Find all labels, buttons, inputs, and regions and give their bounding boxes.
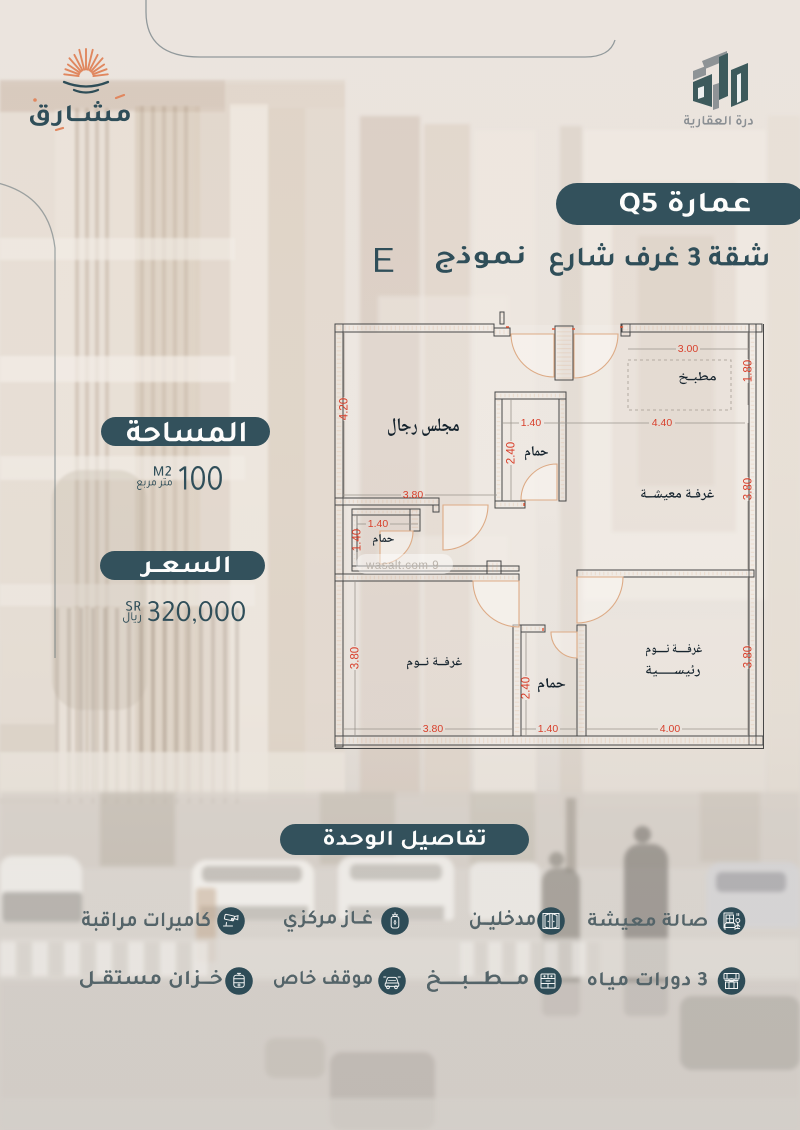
svg-text:1.80: 1.80 [743,360,755,382]
svg-text:2.40: 2.40 [521,677,533,699]
svg-text:3.00: 3.00 [678,343,699,355]
svg-text:1.40: 1.40 [521,417,542,429]
svg-text:3.80: 3.80 [423,723,444,735]
svg-text:3.80: 3.80 [743,646,755,668]
svg-text:4.20: 4.20 [339,398,351,420]
svg-text:wasalt.com 9: wasalt.com 9 [365,560,439,572]
svg-text:4.40: 4.40 [652,417,673,429]
svg-text:4.00: 4.00 [660,723,681,735]
svg-text:1.40: 1.40 [538,723,559,735]
svg-text:1.40: 1.40 [368,518,389,530]
svg-text:1.40: 1.40 [352,529,364,551]
svg-text:2.40: 2.40 [506,442,518,464]
svg-text:3.80: 3.80 [743,478,755,500]
svg-text:3.80: 3.80 [403,489,424,501]
svg-text:3.80: 3.80 [350,647,362,669]
